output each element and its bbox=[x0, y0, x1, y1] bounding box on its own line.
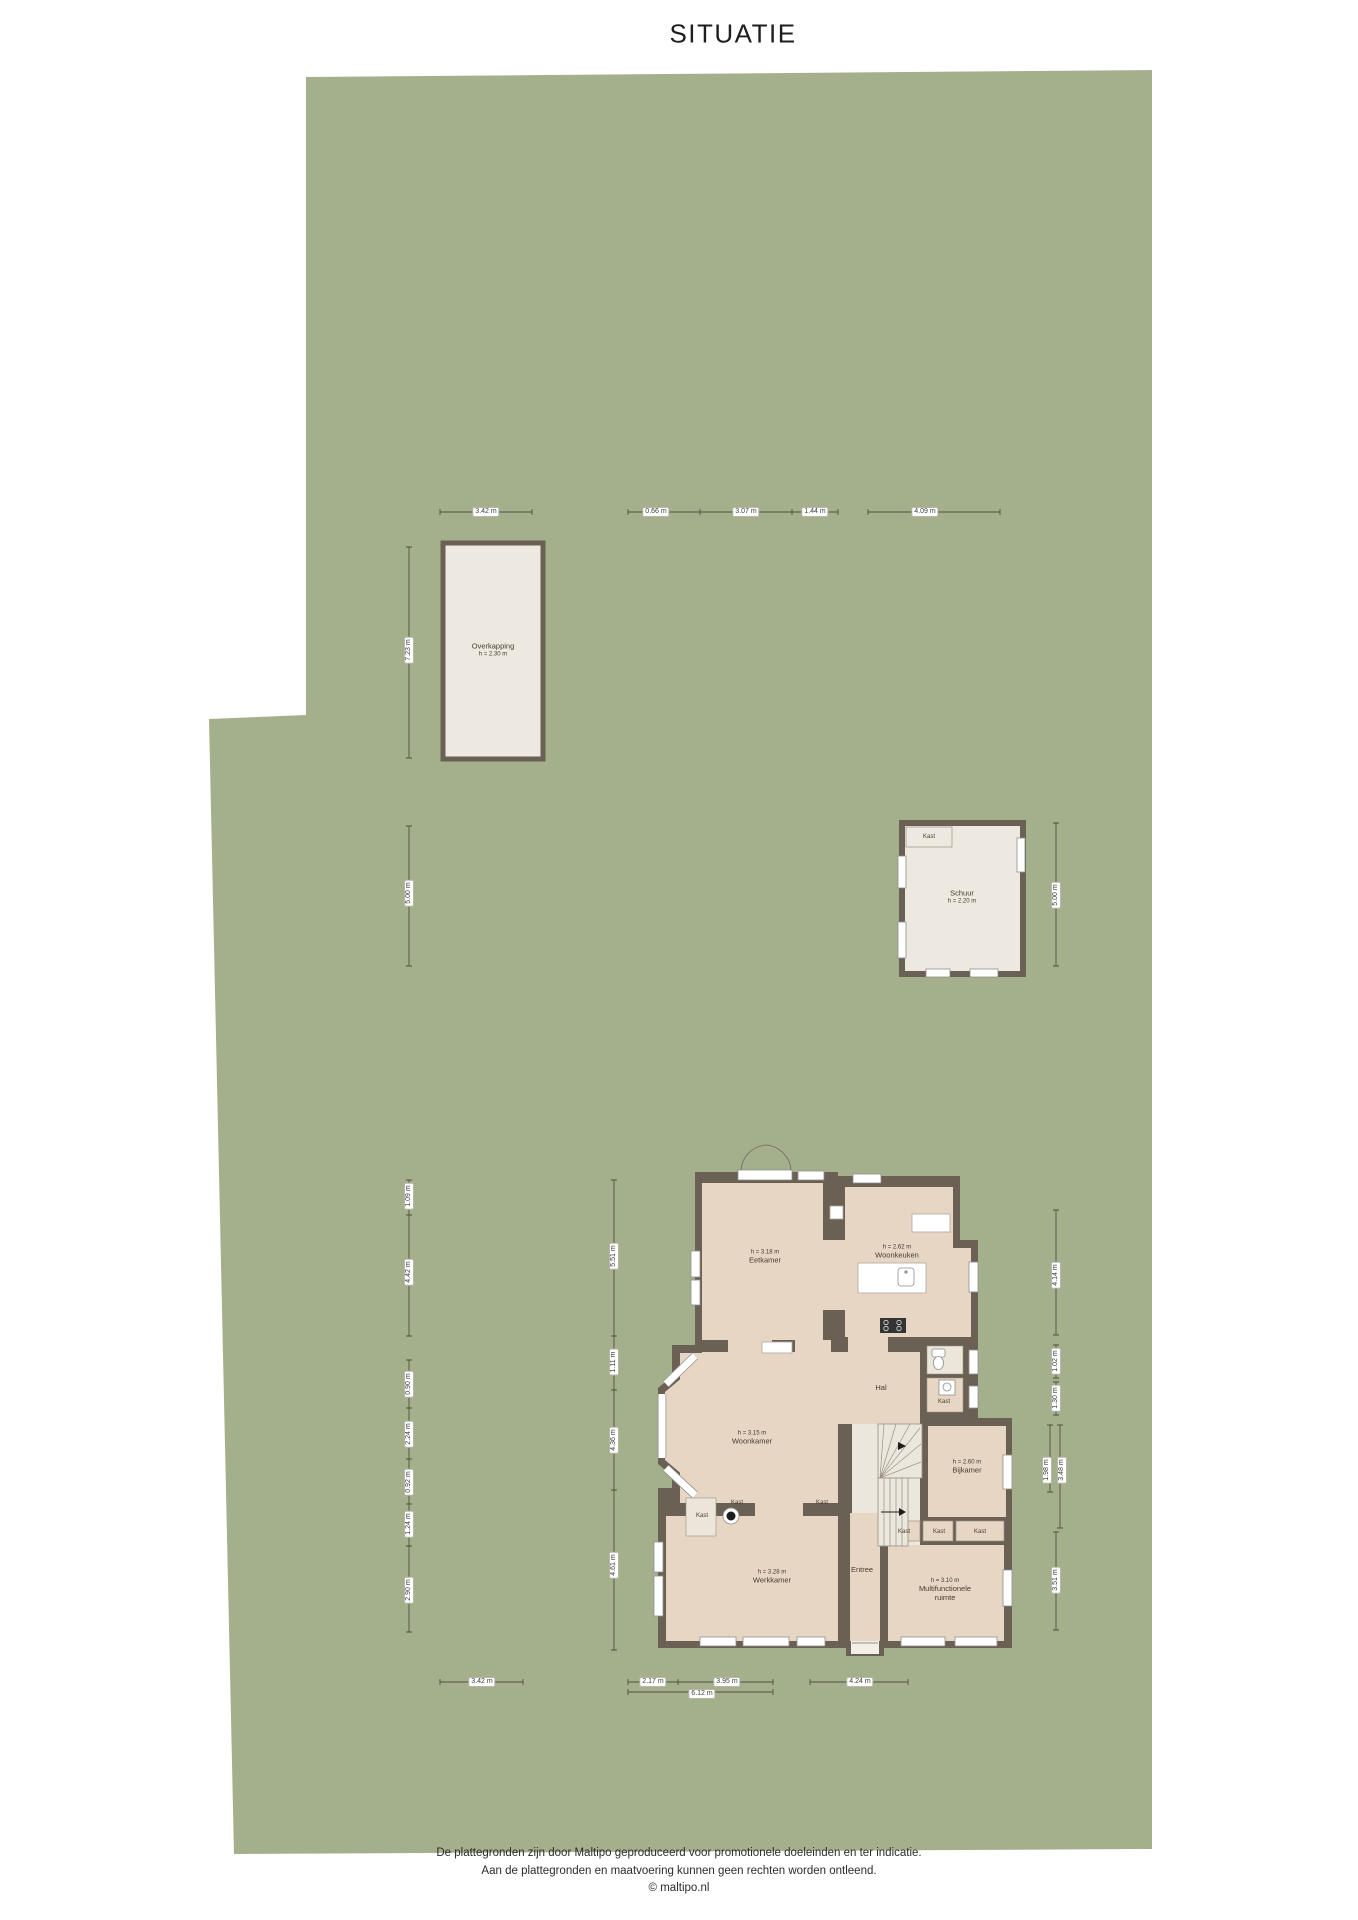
dim-label: 3.48 m bbox=[1057, 1456, 1067, 1483]
overkapping-label: Overkapping h = 2.30 m bbox=[472, 642, 515, 658]
dim-label: 2.17 m bbox=[639, 1677, 666, 1687]
kast-nis1-label: Kast bbox=[731, 1500, 743, 1506]
dim-label: 7.23 m bbox=[404, 636, 414, 663]
eetkamer-label: h = 3.18 m Eetkamer bbox=[749, 1249, 781, 1265]
dim-label: 6.12 m bbox=[688, 1689, 715, 1699]
dim-label: 3.42 m bbox=[472, 507, 499, 517]
dim-label: 1.98 m bbox=[1042, 1456, 1052, 1483]
kast-row3-label: Kast bbox=[974, 1529, 986, 1535]
kast-links-label: Kast bbox=[696, 1513, 708, 1519]
dim-label: 4.36 m bbox=[609, 1426, 619, 1453]
hal-label: Hal bbox=[875, 1384, 886, 1393]
kitchen-island bbox=[858, 1263, 926, 1293]
footer-line-2: Aan de plattegronden en maatvoering kunn… bbox=[0, 1863, 1358, 1881]
dim-label: 1.09 m bbox=[404, 1182, 414, 1209]
woonkeuken-label: h = 2.62 m Woonkeuken bbox=[875, 1244, 919, 1260]
kast-hal-label: Kast bbox=[938, 1399, 950, 1405]
dim-label: 5.00 m bbox=[1051, 881, 1061, 908]
dim-label: 3.51 m bbox=[1051, 1566, 1061, 1593]
multifunctionele-ruimte-label: h = 3.10 m Multifunctionele ruimte bbox=[919, 1578, 971, 1602]
dim-label: 1.44 m bbox=[801, 507, 828, 517]
dim-label: 5.51 m bbox=[609, 1242, 619, 1269]
wash-basin bbox=[939, 1380, 955, 1395]
woonkeuken-floor bbox=[845, 1187, 953, 1337]
situatie-floorplan-page: SITUATIE bbox=[0, 0, 1358, 1920]
kast-nis2-label: Kast bbox=[816, 1500, 828, 1506]
dim-label: 1.24 m bbox=[404, 1510, 414, 1537]
dim-label: 0.66 m bbox=[642, 507, 669, 517]
niche bbox=[830, 1206, 843, 1219]
woonkamer-floor bbox=[680, 1353, 838, 1503]
wall-niche bbox=[762, 1342, 792, 1353]
entree-floor bbox=[850, 1513, 880, 1641]
schuur-label: Schuur h = 2.20 m bbox=[948, 889, 977, 905]
dim-label: 2.24 m bbox=[404, 1420, 414, 1447]
werkkamer-label: h = 3.28 m Werkkamer bbox=[753, 1569, 791, 1585]
schuur-closet-label: Kast bbox=[923, 834, 935, 840]
dim-label: 4.14 m bbox=[1051, 1261, 1061, 1288]
footer-disclaimer: De plattegronden zijn door Maltipo gepro… bbox=[0, 1845, 1358, 1898]
dim-label: 5.00 m bbox=[404, 879, 414, 906]
entree-label: Entree bbox=[851, 1566, 873, 1575]
dim-label: 4.61 m bbox=[609, 1551, 619, 1578]
dim-label: 3.95 m bbox=[713, 1677, 740, 1687]
dim-label: 3.07 m bbox=[732, 507, 759, 517]
dim-label: 3.42 m bbox=[468, 1677, 495, 1687]
dim-label: 1.02 m bbox=[1051, 1347, 1061, 1374]
dim-label: 2.90 m bbox=[404, 1576, 414, 1603]
dim-label: 1.11 m bbox=[609, 1349, 619, 1376]
dim-label: 0.90 m bbox=[404, 1370, 414, 1397]
kitchen-counter bbox=[912, 1214, 950, 1232]
footer-copyright: © maltipo.nl bbox=[0, 1880, 1358, 1898]
toilet bbox=[932, 1349, 945, 1357]
footer-line-1: De plattegronden zijn door Maltipo gepro… bbox=[0, 1845, 1358, 1863]
stove bbox=[880, 1318, 906, 1333]
dim-label: 4.42 m bbox=[404, 1258, 414, 1285]
dim-label: 0.92 m bbox=[404, 1468, 414, 1495]
kast-row1-label: Kast bbox=[898, 1529, 910, 1535]
dim-label: 4.09 m bbox=[911, 507, 938, 517]
bijkamer-label: h = 2.60 m Bijkamer bbox=[952, 1459, 981, 1475]
dim-label: 4.24 m bbox=[846, 1677, 873, 1687]
woonkamer-label: h = 3.15 m Woonkamer bbox=[732, 1430, 772, 1446]
garden-doors bbox=[738, 1170, 792, 1180]
dim-label: 1.30 m bbox=[1051, 1384, 1061, 1411]
kast-row2-label: Kast bbox=[933, 1529, 945, 1535]
site-plan-svg bbox=[0, 0, 1358, 1920]
